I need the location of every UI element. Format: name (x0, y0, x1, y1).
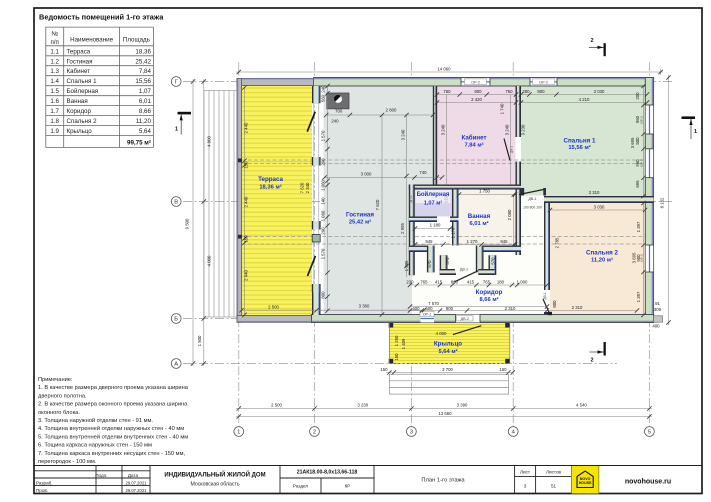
svg-text:2 500: 2 500 (271, 402, 282, 407)
svg-text:8,66 м²: 8,66 м² (479, 296, 498, 303)
svg-text:415: 415 (435, 279, 443, 284)
svg-text:695: 695 (635, 180, 640, 188)
svg-text:5,64: 5,64 (139, 128, 152, 135)
svg-text:оконного блока.: оконного блока. (38, 410, 80, 416)
svg-text:7,84: 7,84 (139, 68, 152, 75)
svg-text:1 250: 1 250 (394, 335, 399, 346)
svg-text:1.7: 1.7 (50, 108, 59, 115)
svg-text:Спальня 2: Спальня 2 (586, 250, 618, 257)
svg-text:Спальня 1: Спальня 1 (67, 78, 98, 85)
svg-text:Лист: Лист (520, 470, 531, 475)
svg-text:3 230: 3 230 (357, 402, 368, 407)
svg-text:765: 765 (483, 279, 491, 284)
svg-text:150: 150 (380, 367, 388, 372)
svg-text:1: 1 (694, 129, 697, 135)
svg-text:3 240: 3 240 (441, 124, 446, 135)
svg-text:3 360: 3 360 (359, 304, 370, 309)
svg-text:ИНДИВИДУАЛЬНЫЙ ЖИЛОЙ ДОМ: ИНДИВИДУАЛЬНЫЙ ЖИЛОЙ ДОМ (164, 471, 265, 479)
svg-text:800: 800 (321, 291, 326, 299)
svg-text:1 060: 1 060 (321, 180, 326, 191)
svg-text:1.5: 1.5 (50, 88, 59, 95)
svg-text:1 409: 1 409 (401, 338, 406, 349)
svg-text:11,20 м²: 11,20 м² (591, 257, 613, 264)
svg-text:ДВ-2: ДВ-2 (461, 317, 469, 321)
svg-text:Коридор: Коридор (67, 108, 92, 115)
svg-text:1 060: 1 060 (321, 210, 326, 221)
svg-text:5: 5 (648, 430, 651, 436)
svg-text:560: 560 (321, 94, 326, 102)
svg-text:25,42 м²: 25,42 м² (349, 219, 371, 226)
svg-text:Кабинет: Кабинет (67, 68, 91, 75)
svg-text:2 310: 2 310 (572, 305, 583, 310)
svg-text:21АК18.00-8,0х13,66-118: 21АК18.00-8,0х13,66-118 (297, 470, 358, 476)
svg-text:№: № (51, 31, 58, 38)
svg-text:2 420: 2 420 (471, 97, 482, 102)
svg-text:Крыльцо: Крыльцо (434, 341, 462, 348)
svg-text:2 080: 2 080 (507, 209, 512, 220)
svg-text:1.1: 1.1 (50, 48, 59, 55)
svg-text:1: 1 (175, 127, 178, 133)
svg-text:900: 900 (474, 89, 482, 94)
svg-text:1.2: 1.2 (50, 58, 59, 65)
svg-text:1 570: 1 570 (321, 248, 326, 259)
svg-text:NOVO: NOVO (580, 477, 591, 481)
svg-text:1 740: 1 740 (500, 103, 505, 114)
svg-text:3. Толщина наружной отделки ст: 3. Толщина наружной отделки стен - 91 мм… (38, 417, 153, 424)
svg-text:240: 240 (321, 85, 326, 93)
svg-text:1. В качестве размера дверного: 1. В качестве размера дверного проема ук… (38, 385, 189, 391)
svg-text:Дата: Дата (128, 473, 139, 478)
svg-text:200: 200 (635, 92, 640, 100)
svg-text:Бойлерная: Бойлерная (67, 88, 99, 95)
svg-text:ДВ-1: ДВ-1 (543, 292, 547, 299)
svg-text:400: 400 (412, 306, 420, 311)
svg-text:2: 2 (590, 38, 593, 44)
svg-text:150: 150 (499, 367, 507, 372)
svg-text:230: 230 (406, 279, 414, 284)
svg-text:3 390: 3 390 (457, 402, 468, 407)
svg-text:4 210: 4 210 (579, 97, 590, 102)
svg-text:15,56: 15,56 (135, 78, 151, 85)
svg-text:Терраса: Терраса (258, 176, 283, 183)
svg-text:2 800: 2 800 (386, 108, 397, 113)
svg-text:1.6: 1.6 (50, 98, 59, 105)
svg-text:Кабинет: Кабинет (461, 135, 486, 142)
svg-text:3 310: 3 310 (589, 190, 600, 195)
svg-text:3 030: 3 030 (594, 89, 605, 94)
svg-text:180: 180 (497, 279, 505, 284)
svg-text:91: 91 (655, 301, 660, 306)
svg-text:1 397: 1 397 (636, 221, 641, 232)
svg-text:Московская область: Московская область (190, 482, 239, 488)
svg-text:2 310: 2 310 (505, 306, 516, 311)
svg-text:25,42: 25,42 (135, 58, 151, 65)
svg-text:Площадь: Площадь (123, 37, 150, 44)
svg-text:150: 150 (244, 235, 249, 243)
svg-text:Листов: Листов (546, 470, 561, 475)
svg-text:ОР-3: ОР-3 (640, 159, 644, 167)
svg-text:План 1-го этажа: План 1-го этажа (421, 478, 465, 484)
svg-text:1 750: 1 750 (479, 188, 490, 193)
svg-text:HOUSE: HOUSE (579, 481, 592, 485)
svg-text:п/п: п/п (50, 39, 58, 46)
svg-text:1.4: 1.4 (50, 78, 59, 85)
svg-text:Наименование: Наименование (70, 37, 113, 44)
svg-text:3 240: 3 240 (505, 124, 510, 135)
svg-text:8 162: 8 162 (659, 197, 664, 208)
svg-text:900: 900 (446, 306, 454, 311)
svg-text:570: 570 (445, 257, 450, 265)
svg-text:740: 740 (419, 170, 427, 175)
svg-text:1 180: 1 180 (430, 223, 441, 228)
svg-text:Спальня 1: Спальня 1 (564, 137, 596, 144)
svg-text:1.3: 1.3 (50, 68, 59, 75)
svg-text:6,01: 6,01 (139, 98, 152, 105)
svg-text:4 000: 4 000 (207, 255, 212, 266)
svg-text:ОР-2: ОР-2 (471, 80, 480, 84)
svg-text:2 500: 2 500 (268, 304, 279, 309)
svg-text:Примечание:: Примечание: (38, 377, 73, 383)
svg-text:1 385: 1 385 (404, 260, 409, 271)
svg-text:7 620: 7 620 (375, 199, 380, 210)
svg-text:500: 500 (635, 137, 640, 145)
svg-text:Ведомость помещений 1-го этажа: Ведомость помещений 1-го этажа (39, 13, 164, 22)
svg-text:ДВ-1: ДВ-1 (509, 146, 513, 153)
svg-text:800: 800 (451, 279, 459, 284)
svg-text:3 695: 3 695 (630, 137, 635, 148)
svg-text:novohouse.ru: novohouse.ru (625, 479, 671, 486)
svg-text:945: 945 (500, 239, 508, 244)
svg-text:140: 140 (321, 197, 326, 205)
svg-text:100 800 100: 100 800 100 (523, 205, 542, 209)
svg-text:2 995: 2 995 (400, 223, 405, 234)
svg-text:Гостиная: Гостиная (67, 58, 93, 65)
svg-text:Гостиная: Гостиная (346, 212, 374, 219)
svg-text:1 397: 1 397 (636, 291, 641, 302)
svg-text:Крыльцо: Крыльцо (67, 128, 93, 135)
svg-text:99,75 м²: 99,75 м² (127, 139, 151, 146)
svg-text:29.07.2021: 29.07.2021 (126, 480, 148, 485)
svg-text:Подп.: Подп. (95, 473, 107, 478)
svg-text:1.9: 1.9 (50, 128, 59, 135)
svg-text:4 540: 4 540 (576, 402, 587, 407)
svg-text:А: А (174, 362, 178, 368)
svg-text:11,20: 11,20 (136, 118, 152, 125)
svg-text:3 695: 3 695 (632, 252, 637, 263)
svg-text:Пров.: Пров. (36, 488, 48, 493)
svg-text:1: 1 (237, 430, 240, 436)
svg-text:2 785: 2 785 (555, 237, 560, 248)
svg-text:9 500: 9 500 (185, 218, 190, 229)
svg-text:2 340: 2 340 (305, 182, 310, 193)
svg-text:900: 900 (537, 89, 545, 94)
svg-text:3: 3 (410, 430, 413, 436)
svg-text:280: 280 (522, 89, 530, 94)
svg-text:760: 760 (505, 89, 513, 94)
svg-text:3 240: 3 240 (401, 129, 406, 140)
svg-text:1,07: 1,07 (139, 88, 152, 95)
svg-text:2: 2 (313, 430, 316, 436)
svg-text:Коридор: Коридор (476, 289, 503, 296)
svg-text:3 230: 3 230 (521, 124, 526, 135)
svg-text:1 500: 1 500 (197, 335, 202, 346)
svg-text:7 620: 7 620 (300, 182, 305, 193)
svg-text:5,64 м²: 5,64 м² (438, 348, 457, 355)
svg-text:700: 700 (335, 109, 343, 114)
svg-text:945: 945 (425, 239, 433, 244)
svg-text:415: 415 (467, 279, 475, 284)
svg-text:18,36 м²: 18,36 м² (259, 183, 281, 190)
svg-text:5. Толщина внутренней отделки: 5. Толщина внутренней отделки внутренних… (38, 433, 188, 440)
svg-text:29.07.2021: 29.07.2021 (126, 488, 148, 493)
svg-text:ОР-1: ОР-1 (423, 313, 432, 317)
svg-text:Раздел: Раздел (293, 484, 309, 489)
svg-text:ДП-1: ДП-1 (409, 195, 413, 203)
svg-text:15,56 м²: 15,56 м² (568, 144, 590, 151)
svg-text:3: 3 (524, 484, 527, 489)
svg-text:760: 760 (443, 89, 451, 94)
svg-text:Терраса: Терраса (67, 48, 91, 55)
svg-text:14 060: 14 060 (437, 67, 451, 72)
svg-text:309: 309 (654, 307, 662, 312)
svg-text:1 570: 1 570 (321, 130, 326, 141)
svg-text:1 000: 1 000 (517, 279, 528, 284)
svg-text:7,84 м²: 7,84 м² (464, 142, 483, 149)
svg-text:6,01 м²: 6,01 м² (469, 220, 488, 227)
svg-text:3 700: 3 700 (442, 367, 453, 372)
svg-text:150: 150 (394, 353, 399, 361)
svg-text:1.8: 1.8 (50, 118, 59, 125)
svg-text:765: 765 (420, 279, 428, 284)
svg-text:150: 150 (244, 161, 249, 169)
svg-text:400: 400 (652, 324, 660, 329)
svg-text:240: 240 (331, 118, 339, 123)
svg-text:ОР-3: ОР-3 (640, 254, 644, 262)
svg-text:4 000: 4 000 (436, 331, 447, 336)
svg-text:Ванная: Ванная (468, 213, 491, 220)
svg-text:2 440: 2 440 (244, 270, 249, 281)
svg-text:18,36: 18,36 (135, 48, 151, 55)
svg-text:2: 2 (590, 358, 593, 364)
svg-text:290: 290 (321, 158, 326, 166)
svg-text:ОР-2: ОР-2 (539, 80, 548, 84)
svg-text:ДВ-1: ДВ-1 (460, 267, 468, 271)
svg-text:ОР-3: ОР-3 (640, 116, 644, 124)
svg-text:дверного полотна.: дверного полотна. (38, 393, 87, 399)
svg-text:8,66: 8,66 (139, 108, 152, 115)
svg-text:Бойлерная: Бойлерная (417, 191, 450, 198)
svg-text:1,07 м²: 1,07 м² (424, 200, 443, 207)
svg-text:КР: КР (345, 484, 351, 489)
svg-text:7. Толщина каркаса внутренних: 7. Толщина каркаса внутренних несущих ст… (38, 451, 185, 457)
svg-text:3 030: 3 030 (594, 204, 605, 209)
svg-text:2 440: 2 440 (244, 196, 249, 207)
svg-text:ДВ-1: ДВ-1 (528, 197, 536, 201)
svg-text:4. Толщина внутренней отделки: 4. Толщина внутренней отделки наружных с… (38, 425, 184, 432)
svg-text:В: В (174, 200, 178, 206)
svg-text:2 440: 2 440 (244, 122, 249, 133)
svg-text:13 660: 13 660 (438, 411, 452, 416)
svg-text:перегородок - 100 мм.: перегородок - 100 мм. (38, 459, 97, 465)
svg-text:2. В качестве размера оконного: 2. В качестве размера оконного проема ук… (38, 402, 188, 408)
svg-text:1 178: 1 178 (451, 227, 456, 238)
svg-text:6. Тощина каркаса наружных сте: 6. Тощина каркаса наружных стен - 150 мм (38, 443, 152, 449)
svg-text:51: 51 (551, 484, 557, 489)
svg-text:3 000: 3 000 (361, 172, 372, 177)
svg-text:800: 800 (552, 300, 557, 308)
svg-text:290: 290 (321, 227, 326, 235)
svg-text:Ванная: Ванная (67, 98, 88, 105)
svg-text:Разраб.: Разраб. (36, 480, 53, 485)
svg-text:4 000: 4 000 (207, 136, 212, 147)
svg-text:1 270: 1 270 (467, 239, 478, 244)
svg-text:Спальня 2: Спальня 2 (67, 118, 98, 125)
svg-text:570: 570 (427, 260, 432, 268)
svg-text:570: 570 (491, 257, 496, 265)
svg-text:600: 600 (425, 306, 433, 311)
svg-text:Б: Б (174, 317, 178, 323)
